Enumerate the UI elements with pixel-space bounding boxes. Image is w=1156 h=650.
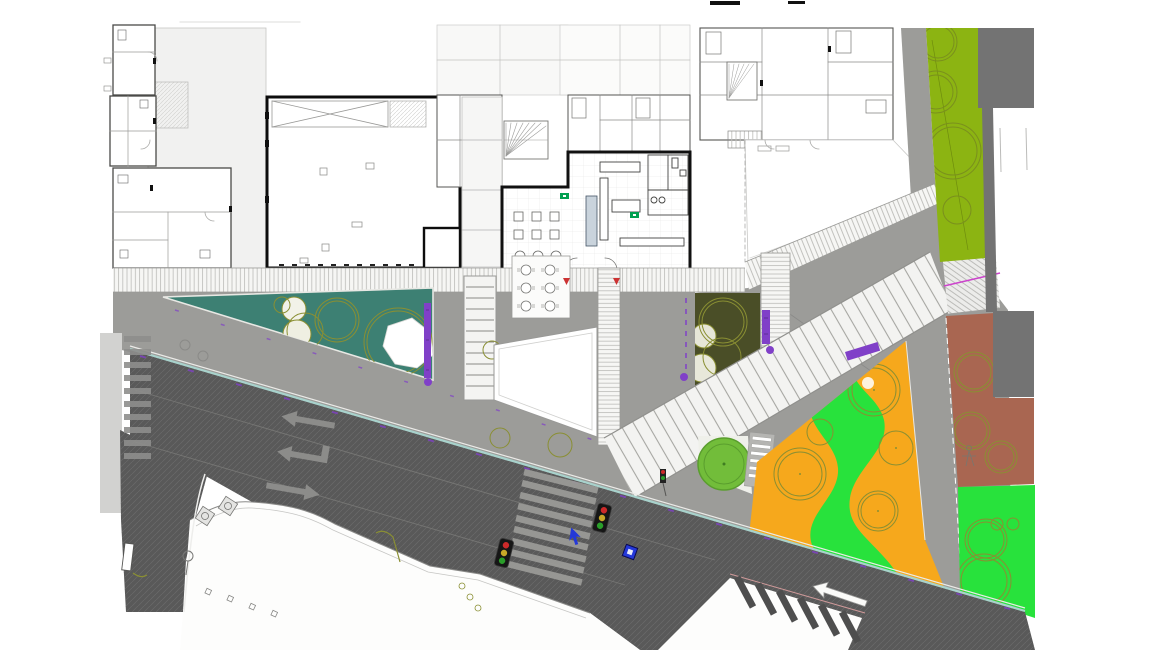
site-plan-drawing [0,0,1156,650]
fan-stair-2 [727,62,757,100]
dark-roof-block-north [978,28,1034,108]
corridor [462,97,502,267]
bench-path-edge [762,310,770,344]
purple-marker [680,373,688,381]
edge-fragment [104,58,111,63]
right-building-cluster [700,1,893,148]
ladder-stair [464,276,496,400]
edge-fragment [104,86,111,91]
restaurant [502,152,690,273]
dark-roof-block-south [993,311,1034,397]
purple-marker [766,346,774,354]
purple-marker [424,378,432,386]
faint-lines [1000,128,1027,172]
fan-stair-1 [504,121,548,159]
vertical-path-center [598,268,620,445]
site-plan-canvas [0,0,1156,650]
dining-tables [514,212,561,261]
warehouse-hall [265,97,460,268]
hatched-bay [390,101,426,127]
buildings-block [104,1,941,273]
outdoor-seating [512,256,570,318]
west-verge-block [100,333,122,513]
corner-room [424,228,460,268]
elevator-shaft [586,196,597,246]
